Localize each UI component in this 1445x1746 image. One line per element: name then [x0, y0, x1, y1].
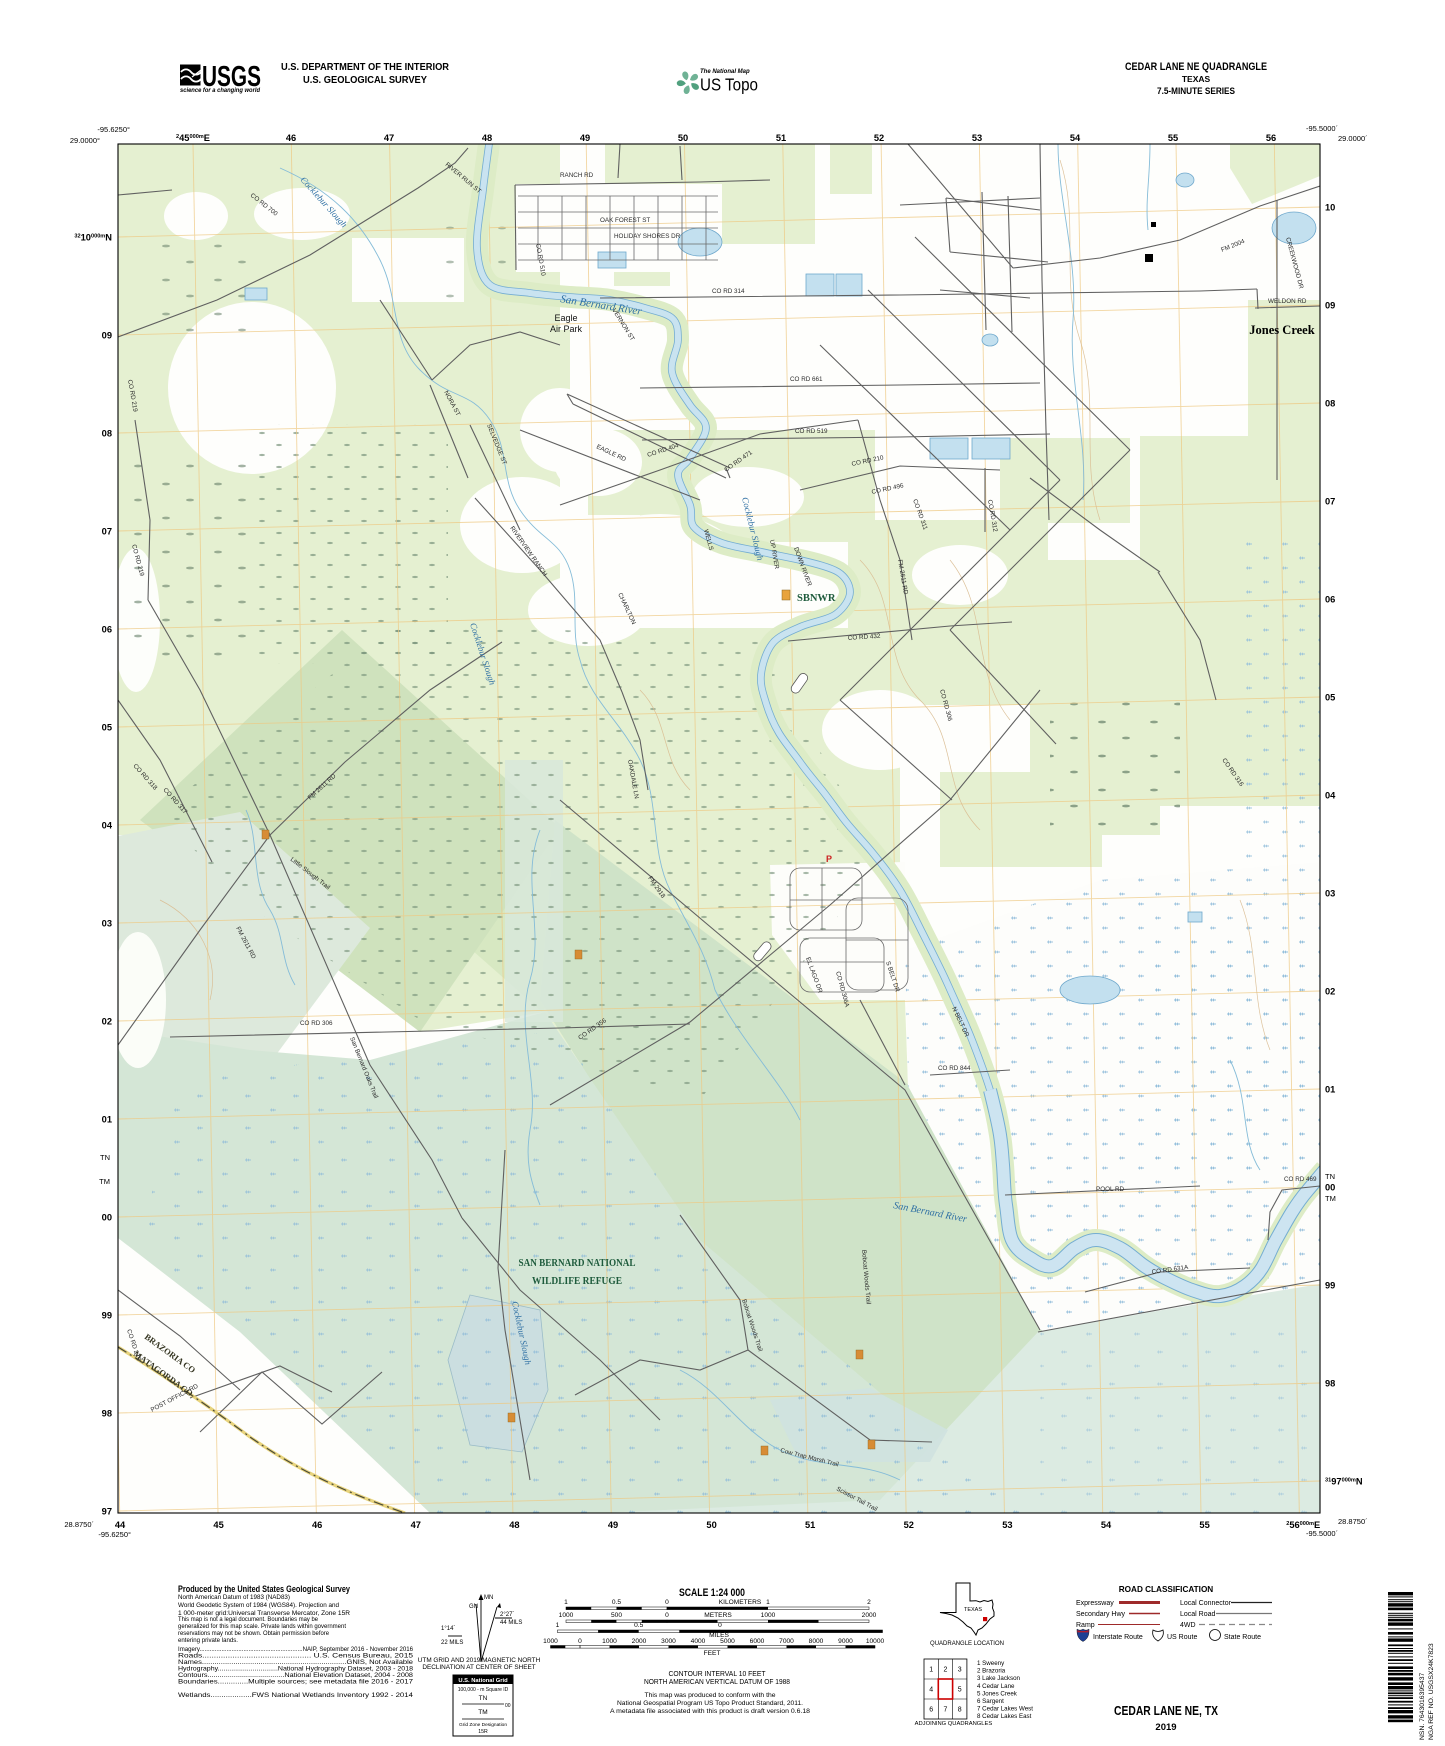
svg-text:SCALE 1:24 000: SCALE 1:24 000: [679, 1587, 745, 1599]
svg-text:03: 03: [102, 919, 112, 929]
svg-text:53: 53: [1002, 1520, 1012, 1530]
svg-text:OAK FOREST ST: OAK FOREST ST: [600, 217, 650, 224]
svg-text:46: 46: [286, 133, 296, 143]
svg-text:46: 46: [312, 1520, 322, 1530]
svg-text:0: 0: [578, 1638, 582, 1645]
svg-text:UTM GRID AND 2019 MAGNETIC NOR: UTM GRID AND 2019 MAGNETIC NORTH: [418, 1657, 541, 1664]
svg-text:Ramp: Ramp: [1076, 1622, 1095, 1629]
svg-text:WELDON RD: WELDON RD: [1268, 298, 1307, 305]
svg-text:4WD: 4WD: [1180, 1622, 1196, 1629]
svg-text:CO RD 844: CO RD 844: [938, 1065, 971, 1072]
svg-text:P: P: [826, 854, 832, 864]
svg-text:US Topo: US Topo: [700, 75, 758, 95]
svg-text:This map is not a legal docume: This map is not a legal document. Bounda…: [178, 1616, 318, 1623]
svg-text:POOL RD: POOL RD: [1096, 1186, 1125, 1193]
svg-text:METERS: METERS: [704, 1612, 732, 1619]
svg-text:TEXAS: TEXAS: [1182, 74, 1211, 84]
svg-text:48: 48: [482, 133, 492, 143]
svg-text:500: 500: [611, 1612, 622, 1619]
svg-text:02: 02: [1325, 987, 1335, 997]
svg-text:97: 97: [102, 1507, 112, 1517]
svg-text:7.5-MINUTE SERIES: 7.5-MINUTE SERIES: [1157, 86, 1235, 96]
svg-text:1: 1: [929, 1667, 933, 1674]
svg-text:National Geospatial Program US: National Geospatial Program US Topo Prod…: [617, 1700, 803, 1707]
svg-text:TN: TN: [100, 1153, 110, 1162]
svg-text:ROAD CLASSIFICATION: ROAD CLASSIFICATION: [1119, 1585, 1214, 1594]
svg-text:2: 2: [943, 1667, 947, 1674]
svg-text:54: 54: [1070, 133, 1081, 143]
svg-text:5000: 5000: [720, 1638, 735, 1645]
svg-text:48: 48: [509, 1520, 519, 1530]
svg-text:generalized for this map scale: generalized for this map scale. Private …: [178, 1623, 346, 1630]
svg-text:8 Cedar Lakes East: 8 Cedar Lakes East: [977, 1713, 1032, 1720]
svg-text:KILOMETERS: KILOMETERS: [719, 1599, 762, 1606]
svg-text:3 Lake Jackson: 3 Lake Jackson: [977, 1675, 1021, 1682]
svg-text:North American Datum of 1983 (: North American Datum of 1983 (NAD83): [178, 1594, 290, 1601]
svg-text:45: 45: [213, 1520, 223, 1530]
svg-text:-95.6250°: -95.6250°: [97, 125, 130, 134]
svg-text:Local Road: Local Road: [1180, 1611, 1216, 1618]
svg-text:ADJOINING QUADRANGLES: ADJOINING QUADRANGLES: [915, 1721, 993, 1727]
svg-text:RANCH RD: RANCH RD: [560, 172, 594, 179]
svg-text:This map was produced to confo: This map was produced to conform with th…: [645, 1692, 776, 1699]
svg-text:State Route: State Route: [1224, 1634, 1261, 1641]
svg-text:9000: 9000: [838, 1638, 853, 1645]
svg-text:02: 02: [102, 1017, 112, 1027]
svg-text:1000: 1000: [543, 1638, 558, 1645]
svg-text:1000: 1000: [761, 1612, 776, 1619]
svg-text:100,000 - m Square ID: 100,000 - m Square ID: [458, 1687, 509, 1693]
svg-text:0.5: 0.5: [634, 1622, 643, 1629]
svg-text:US Route: US Route: [1167, 1634, 1197, 1641]
svg-text:55: 55: [1168, 133, 1178, 143]
svg-text:52: 52: [904, 1520, 914, 1530]
svg-text:0: 0: [665, 1599, 669, 1606]
svg-text:22 MILS: 22 MILS: [441, 1640, 463, 1646]
svg-text:CONTOUR INTERVAL 10 FEET: CONTOUR INTERVAL 10 FEET: [669, 1671, 767, 1678]
svg-text:Secondary Hwy: Secondary Hwy: [1076, 1611, 1126, 1618]
svg-text:Wetlands...................FWS: Wetlands...................FWS National …: [178, 1692, 414, 1699]
svg-text:05: 05: [102, 723, 112, 733]
svg-text:08: 08: [1325, 399, 1335, 409]
svg-text:Expressway: Expressway: [1076, 1600, 1114, 1607]
svg-text:98: 98: [102, 1409, 112, 1419]
svg-text:99: 99: [102, 1311, 112, 1321]
svg-text:Local Connector: Local Connector: [1180, 1600, 1232, 1607]
svg-text:Eagle: Eagle: [554, 313, 577, 323]
svg-text:A metadata file associated wit: A metadata file associated with this pro…: [610, 1708, 810, 1715]
svg-text:00: 00: [1325, 1183, 1335, 1193]
svg-text:HOLIDAY SHORES DR: HOLIDAY SHORES DR: [614, 233, 681, 240]
svg-text:09: 09: [102, 331, 112, 341]
svg-text:54: 54: [1101, 1520, 1112, 1530]
svg-text:CO RD 469: CO RD 469: [1284, 1176, 1317, 1183]
svg-text:09: 09: [1325, 301, 1335, 311]
svg-text:98: 98: [1325, 1379, 1335, 1389]
svg-text:3000: 3000: [661, 1638, 676, 1645]
svg-text:TN: TN: [1325, 1172, 1335, 1181]
svg-text:05: 05: [1325, 693, 1335, 703]
svg-text:TM: TM: [99, 1177, 110, 1186]
svg-text:5 Jones Creek: 5 Jones Creek: [977, 1690, 1018, 1697]
svg-text:52: 52: [874, 133, 884, 143]
svg-text:56: 56: [1266, 133, 1276, 143]
svg-text:15R: 15R: [478, 1729, 488, 1735]
svg-text:55: 55: [1199, 1520, 1209, 1530]
svg-text:50: 50: [678, 133, 688, 143]
svg-text:CEDAR LANE NE, TX: CEDAR LANE NE, TX: [1114, 1703, 1218, 1718]
svg-text:29.0000°: 29.0000°: [70, 136, 100, 145]
svg-text:07: 07: [1325, 497, 1335, 507]
svg-text:TN: TN: [479, 1695, 488, 1702]
svg-text:science for a changing world: science for a changing world: [180, 87, 260, 94]
svg-text:04: 04: [1325, 791, 1336, 801]
svg-text:0.5: 0.5: [612, 1599, 621, 1606]
svg-text:U.S. National Grid: U.S. National Grid: [458, 1678, 508, 1684]
svg-text:01: 01: [1325, 1085, 1335, 1095]
svg-text:29.0000´: 29.0000´: [1338, 134, 1368, 143]
svg-text:U.S. DEPARTMENT OF THE INTERIO: U.S. DEPARTMENT OF THE INTERIOR: [281, 62, 450, 73]
svg-text:SAN BERNARD NATIONAL: SAN BERNARD NATIONAL: [519, 1258, 636, 1269]
svg-text:Jones Creek: Jones Creek: [1249, 323, 1314, 337]
svg-text:-95.5000´: -95.5000´: [1306, 124, 1338, 133]
svg-text:47: 47: [384, 133, 394, 143]
svg-text:2000: 2000: [862, 1612, 877, 1619]
svg-text:NSN. 7643016395437: NSN. 7643016395437: [1419, 1673, 1426, 1740]
svg-text:10000: 10000: [866, 1638, 885, 1645]
svg-text:4 Cedar Lane: 4 Cedar Lane: [977, 1683, 1015, 1690]
svg-text:01: 01: [102, 1115, 112, 1125]
svg-text:1: 1: [766, 1599, 770, 1606]
svg-text:World Geodetic System of 1984: World Geodetic System of 1984 (WGS84). P…: [178, 1602, 339, 1609]
svg-text:8000: 8000: [809, 1638, 824, 1645]
svg-text:entering private lands.: entering private lands.: [178, 1637, 238, 1644]
svg-text:5: 5: [958, 1687, 962, 1694]
svg-text:Grid Zone Designation: Grid Zone Designation: [459, 1722, 507, 1728]
svg-text:TM: TM: [1325, 1194, 1336, 1203]
svg-text:CO RD 314: CO RD 314: [712, 288, 745, 295]
svg-text:08: 08: [102, 429, 112, 439]
svg-text:06: 06: [102, 625, 112, 635]
svg-text:2000: 2000: [632, 1638, 647, 1645]
svg-text:00: 00: [505, 1703, 511, 1709]
svg-text:2°27´: 2°27´: [500, 1612, 514, 1618]
svg-text:51: 51: [805, 1520, 815, 1530]
svg-text:99: 99: [1325, 1281, 1335, 1291]
svg-text:1 Sweeny: 1 Sweeny: [977, 1660, 1005, 1667]
svg-text:2019: 2019: [1155, 1722, 1176, 1733]
svg-text:CO RD 519: CO RD 519: [795, 428, 828, 435]
svg-text:CO RD 306: CO RD 306: [300, 1020, 333, 1027]
svg-text:WILDLIFE REFUGE: WILDLIFE REFUGE: [532, 1276, 622, 1287]
svg-text:10: 10: [1325, 203, 1335, 213]
svg-text:04: 04: [102, 821, 113, 831]
svg-text:TM: TM: [478, 1709, 487, 1716]
svg-text:44 MILS: 44 MILS: [500, 1620, 522, 1626]
svg-text:-95.6250°: -95.6250°: [98, 1530, 131, 1539]
svg-text:6000: 6000: [750, 1638, 765, 1645]
svg-text:7000: 7000: [779, 1638, 794, 1645]
svg-text:1°14´: 1°14´: [441, 1626, 455, 1632]
svg-text:CEDAR LANE NE QUADRANGLE: CEDAR LANE NE QUADRANGLE: [1125, 61, 1267, 73]
svg-text:0: 0: [718, 1622, 722, 1629]
svg-text:FEET: FEET: [704, 1650, 721, 1657]
svg-text:GN: GN: [469, 1604, 478, 1610]
svg-text:Boundaries..............Multip: Boundaries..............Multiple sources…: [178, 1679, 414, 1686]
svg-text:MN: MN: [484, 1595, 493, 1601]
svg-text:3: 3: [958, 1667, 962, 1674]
svg-text:6: 6: [929, 1707, 933, 1714]
svg-text:06: 06: [1325, 595, 1335, 605]
svg-text:-95.5000´: -95.5000´: [1306, 1529, 1338, 1538]
svg-text:1000: 1000: [602, 1638, 617, 1645]
svg-text:47: 47: [411, 1520, 421, 1530]
svg-text:07: 07: [102, 527, 112, 537]
svg-text:4000: 4000: [691, 1638, 706, 1645]
svg-text:SBNWR: SBNWR: [797, 593, 836, 604]
svg-text:49: 49: [608, 1520, 618, 1530]
svg-text:TEXAS: TEXAS: [964, 1607, 982, 1613]
svg-text:53: 53: [972, 133, 982, 143]
svg-text:00: 00: [102, 1213, 112, 1223]
svg-text:50: 50: [706, 1520, 716, 1530]
svg-text:NGA REF NO. USGSX24K7823: NGA REF NO. USGSX24K7823: [1428, 1643, 1435, 1740]
svg-text:2 Brazoria: 2 Brazoria: [977, 1668, 1006, 1675]
svg-text:reservations may not be shown.: reservations may not be shown. Obtain pe…: [178, 1630, 329, 1637]
svg-text:51: 51: [776, 133, 786, 143]
svg-text:Interstate Route: Interstate Route: [1093, 1634, 1143, 1641]
svg-text:49: 49: [580, 133, 590, 143]
svg-text:28.8750´: 28.8750´: [1338, 1517, 1368, 1526]
svg-text:1000: 1000: [559, 1612, 574, 1619]
svg-text:7 Cedar Lakes West: 7 Cedar Lakes West: [977, 1706, 1033, 1713]
svg-text:28.8750´: 28.8750´: [64, 1520, 94, 1529]
svg-text:6 Sargent: 6 Sargent: [977, 1698, 1004, 1705]
svg-text:1: 1: [564, 1599, 568, 1606]
svg-text:CO RD 661: CO RD 661: [790, 376, 823, 383]
svg-text:8: 8: [958, 1707, 962, 1714]
svg-text:NORTH AMERICAN VERTICAL DATUM: NORTH AMERICAN VERTICAL DATUM OF 1988: [644, 1679, 790, 1686]
svg-text:1: 1: [556, 1622, 560, 1629]
svg-text:03: 03: [1325, 889, 1335, 899]
svg-text:Produced by the United States: Produced by the United States Geological…: [178, 1584, 350, 1594]
svg-text:Air Park: Air Park: [550, 324, 583, 334]
svg-text:44: 44: [115, 1520, 126, 1530]
svg-text:U.S. GEOLOGICAL SURVEY: U.S. GEOLOGICAL SURVEY: [303, 75, 427, 86]
svg-text:0: 0: [665, 1612, 669, 1619]
svg-text:4: 4: [929, 1687, 933, 1694]
svg-text:2: 2: [867, 1599, 871, 1606]
svg-text:QUADRANGLE LOCATION: QUADRANGLE LOCATION: [930, 1641, 1004, 1647]
svg-text:DECLINATION AT CENTER OF SHEET: DECLINATION AT CENTER OF SHEET: [422, 1664, 535, 1671]
svg-text:7: 7: [943, 1707, 947, 1714]
